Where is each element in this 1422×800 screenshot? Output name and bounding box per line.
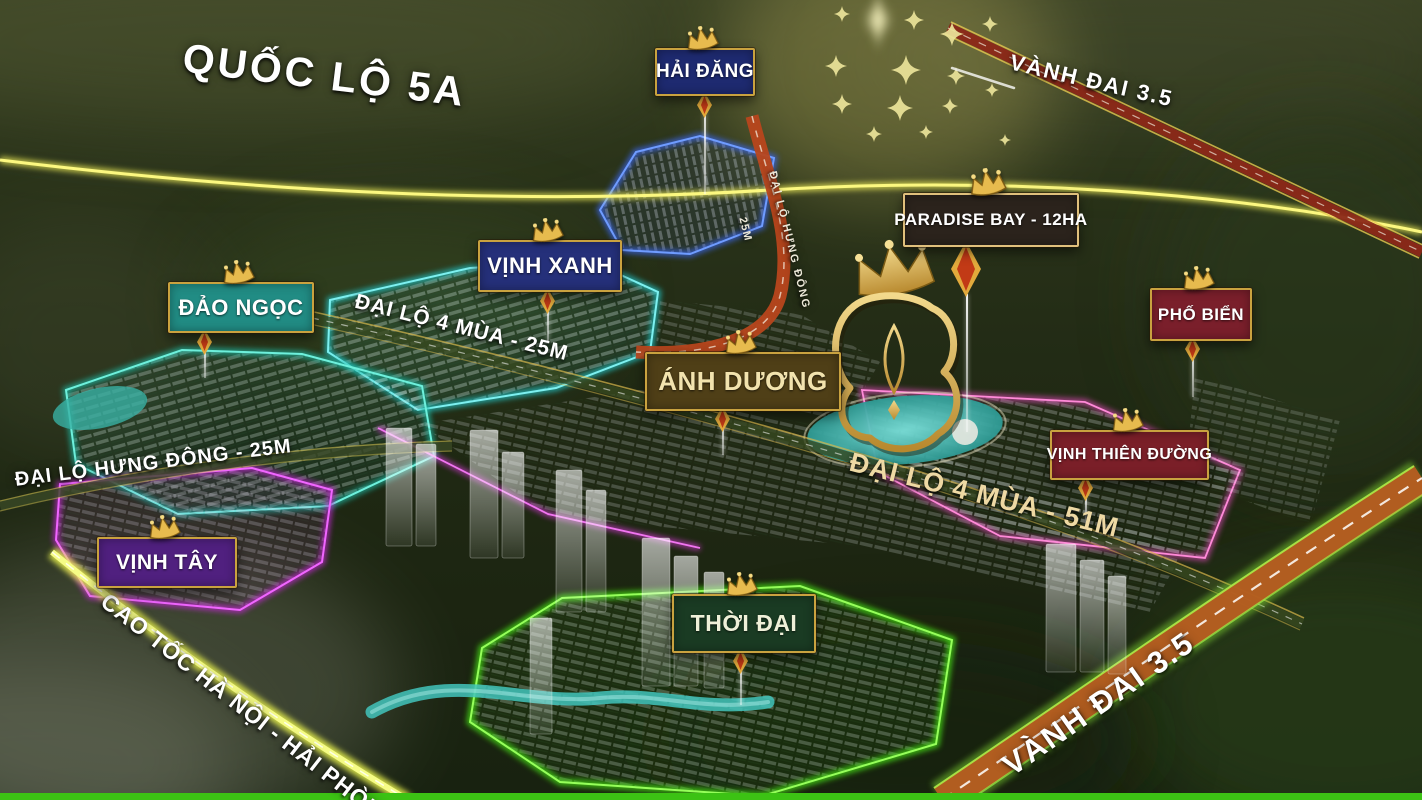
zone-sign-paradise-bay[interactable]: PARADISE BAY - 12HA <box>903 193 1079 247</box>
zone-sign-label: ĐẢO NGỌC <box>179 295 304 321</box>
zone-sign-vinh-thien-duong[interactable]: VỊNH THIÊN ĐƯỜNG <box>1050 430 1209 480</box>
pointer-line-paradise-bay <box>966 294 968 432</box>
zone-sign-dao-ngoc[interactable]: ĐẢO NGỌC <box>168 282 314 333</box>
crown-icon <box>144 512 184 544</box>
zone-sign-label: VỊNH TÂY <box>116 551 218 575</box>
zone-sign-vinh-xanh[interactable]: VỊNH XANH <box>478 240 622 292</box>
crown-icon <box>720 327 760 359</box>
zone-sign-label: HẢI ĐĂNG <box>656 61 754 83</box>
zone-sign-hai-dang[interactable]: HẢI ĐĂNG <box>655 48 755 96</box>
crown-icon <box>527 215 567 247</box>
bottom-green-strip <box>0 793 1422 800</box>
crown-icon <box>963 164 1012 201</box>
masterplan-map: HẢI ĐĂNG VỊNH XANH ĐẢO NGỌC PARADISE BAY… <box>0 0 1422 800</box>
zone-sign-pho-bien[interactable]: PHỐ BIỂN <box>1150 288 1252 341</box>
zone-sign-label: PHỐ BIỂN <box>1158 305 1244 325</box>
zone-sign-label: THỜI ĐẠI <box>691 610 798 637</box>
zone-sign-label: PARADISE BAY - 12HA <box>894 210 1087 230</box>
crown-icon <box>218 257 258 289</box>
zone-sign-label: VỊNH THIÊN ĐƯỜNG <box>1047 446 1213 464</box>
zone-sign-anh-duong[interactable]: ÁNH DƯƠNG <box>645 352 841 411</box>
zone-sign-label: ÁNH DƯƠNG <box>658 366 828 397</box>
crown-icon <box>1178 263 1218 295</box>
crown-icon <box>682 23 722 55</box>
zone-sign-vinh-tay[interactable]: VỊNH TÂY <box>97 537 237 588</box>
zone-sign-thoi-dai[interactable]: THỜI ĐẠI <box>672 594 816 653</box>
crown-icon <box>721 569 761 601</box>
zone-sign-label: VỊNH XANH <box>487 253 613 279</box>
crown-icon <box>1107 405 1147 437</box>
